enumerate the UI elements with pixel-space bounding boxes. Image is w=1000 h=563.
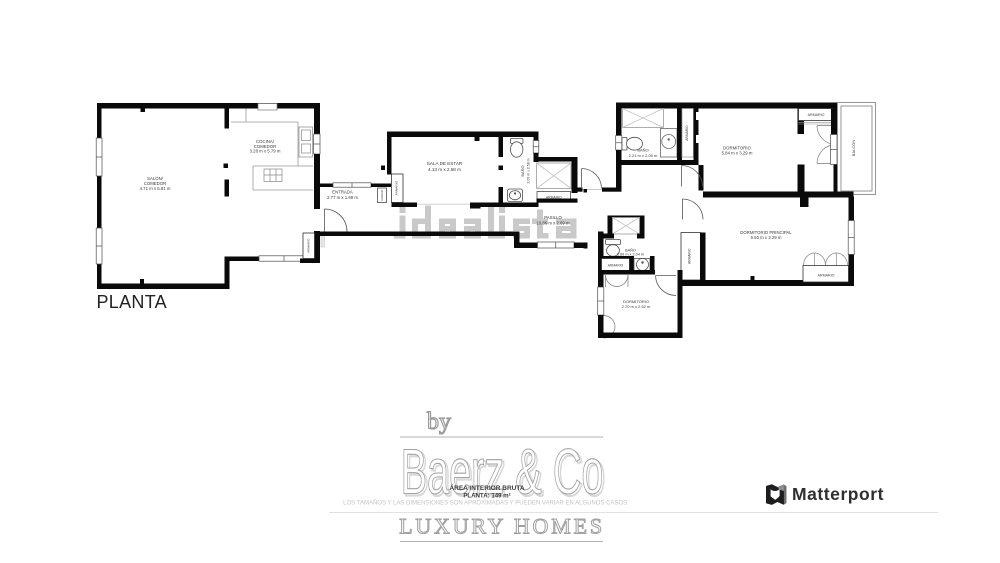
svg-text:SALA DE ESTAR: SALA DE ESTAR (427, 161, 463, 166)
svg-text:ARMARIO: ARMARIO (818, 274, 835, 278)
svg-text:4.71 m x 6.81 m: 4.71 m x 6.81 m (140, 186, 171, 191)
svg-text:BAÑO: BAÑO (637, 148, 648, 153)
svg-text:LUXURY HOMES: LUXURY HOMES (399, 514, 605, 539)
svg-text:ARMARIO: ARMARIO (381, 190, 384, 201)
svg-text:Matterport: Matterport (792, 484, 884, 504)
svg-text:2.09 m x 2.58 m: 2.09 m x 2.58 m (527, 158, 531, 183)
svg-text:ARMARIO: ARMARIO (688, 248, 692, 264)
svg-text:BALCÓN: BALCÓN (851, 140, 856, 157)
svg-text:3.28 m x 5.79 m: 3.28 m x 5.79 m (250, 149, 281, 154)
svg-text:5.84 m x 3.29 m: 5.84 m x 3.29 m (722, 150, 753, 155)
svg-text:ARMARIO: ARMARIO (608, 263, 624, 267)
svg-text:ÁREA INTERIOR BRUTA: ÁREA INTERIOR BRUTA (449, 483, 524, 492)
svg-text:2.70 m x 2.52 m: 2.70 m x 2.52 m (622, 304, 651, 309)
svg-text:2.21 m x 2.09 m: 2.21 m x 2.09 m (629, 153, 658, 158)
svg-text:4.13 m x 2.58 m: 4.13 m x 2.58 m (428, 167, 461, 172)
svg-text:2.77 m x 1.69 m: 2.77 m x 1.69 m (327, 195, 358, 200)
svg-text:ARMARIO: ARMARIO (808, 113, 825, 117)
svg-text:by: by (427, 409, 451, 435)
svg-text:BAÑO: BAÑO (520, 165, 525, 176)
svg-text:DORMITORIO PRINCIPAL: DORMITORIO PRINCIPAL (740, 230, 792, 235)
svg-text:PASILLO: PASILLO (544, 215, 562, 220)
svg-text:PLANTA: 149 m²: PLANTA: 149 m² (463, 493, 510, 500)
svg-text:ARMARIO: ARMARIO (685, 125, 689, 141)
svg-text:ARMARIO: ARMARIO (306, 238, 310, 253)
svg-text:ARMARIO: ARMARIO (394, 180, 398, 195)
svg-text:ENTRADA: ENTRADA (332, 189, 353, 194)
svg-text:6.50 m x 3.29 m: 6.50 m x 3.29 m (751, 235, 782, 240)
svg-text:PLANTA: PLANTA (97, 292, 168, 312)
svg-text:BAÑO: BAÑO (625, 247, 636, 252)
svg-text:LOS TAMAÑOS Y LAS DIMENSIONES: LOS TAMAÑOS Y LAS DIMENSIONES SON APROXI… (343, 500, 629, 507)
svg-text:10.86 m x 2.69 m: 10.86 m x 2.69 m (536, 221, 570, 226)
